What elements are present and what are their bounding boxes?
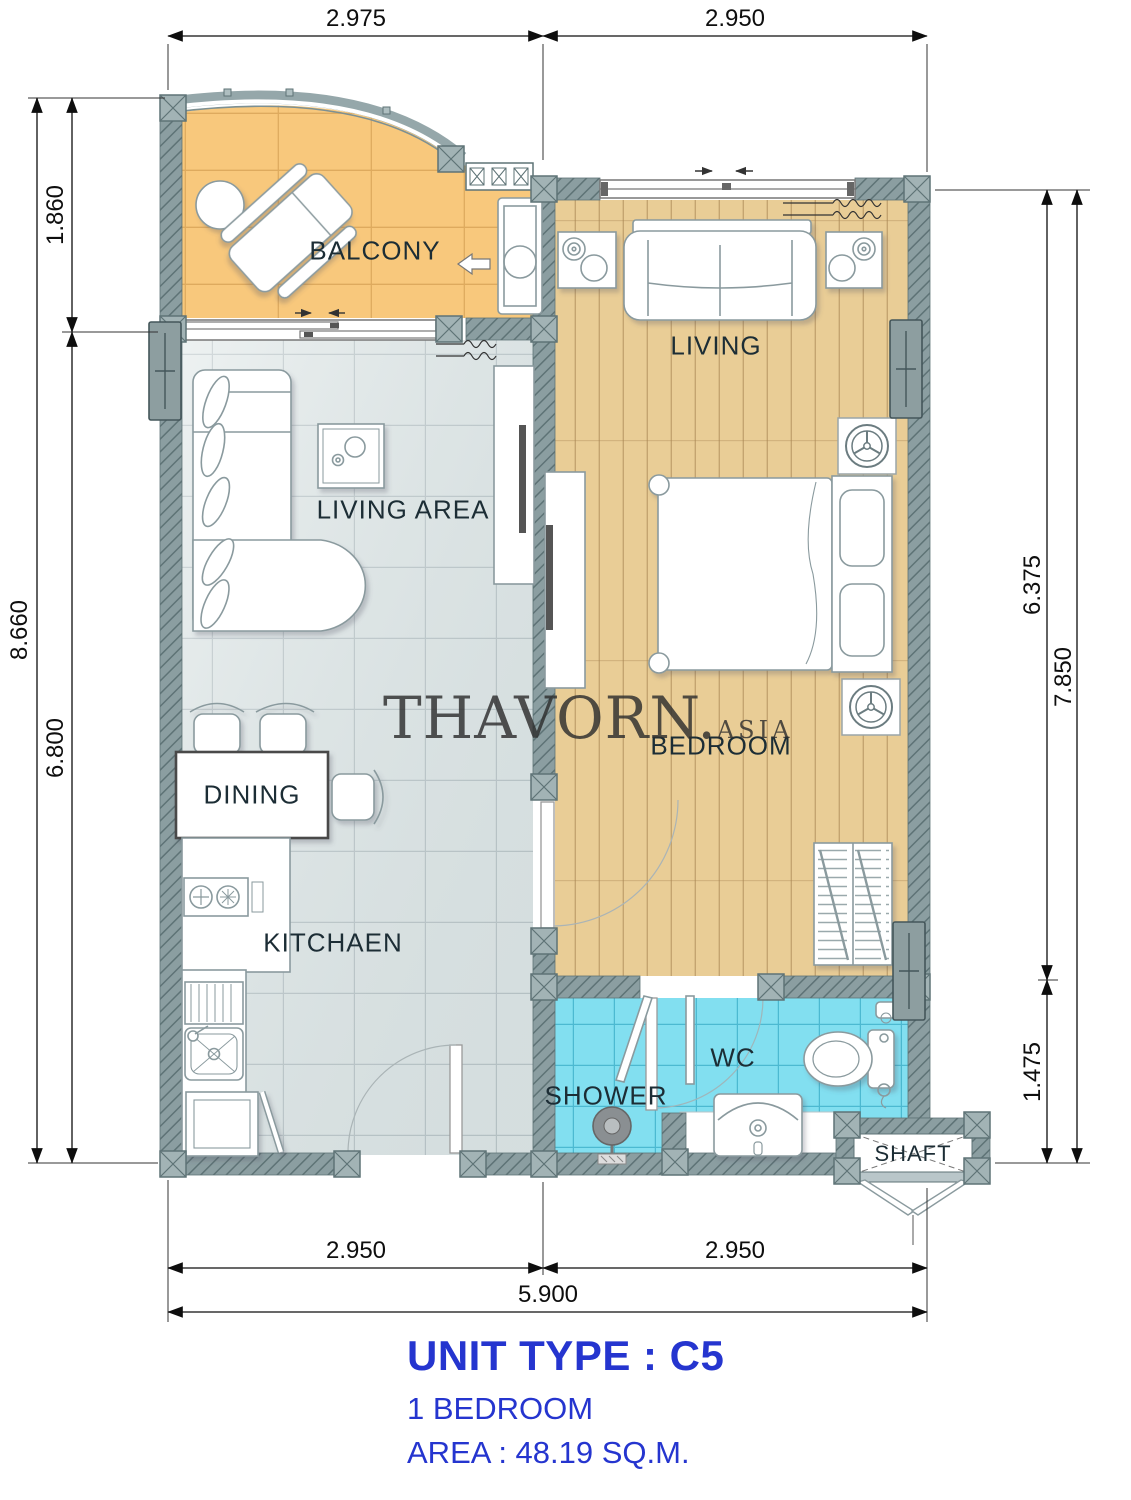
- room-label-dining: DINING: [204, 780, 301, 811]
- side-table-right: [826, 232, 882, 288]
- ceiling-fan-bedroom: [842, 679, 900, 735]
- bedroom-door-leaf: [541, 802, 554, 928]
- watermark: THAVORN.ASIA: [383, 684, 793, 752]
- tv-console-living-area: [494, 366, 534, 584]
- dim-right-total: 7.850: [1050, 647, 1078, 707]
- dim-bottom-right: 2.950: [705, 1237, 765, 1265]
- room-label-living-area: LIVING AREA: [317, 495, 490, 526]
- shaft-box: [834, 1112, 990, 1245]
- room-label-balcony: BALCONY: [309, 236, 440, 267]
- shower-head: [593, 1107, 631, 1164]
- bed: [649, 475, 892, 673]
- wardrobe: [814, 843, 892, 965]
- tv-cabinet-bedroom: [545, 472, 585, 688]
- living-window: [600, 171, 855, 198]
- room-label-shower: SHOWER: [545, 1081, 668, 1112]
- side-table-left: [558, 232, 616, 288]
- room-label-kitchen: KITCHAEN: [263, 928, 402, 959]
- watermark-brand: THAVORN.: [383, 684, 717, 752]
- entry-door-leaf: [450, 1045, 462, 1153]
- dim-left-total: 8.660: [6, 600, 34, 660]
- watermark-tld: ASIA: [717, 716, 794, 744]
- room-label-wc: WC: [710, 1043, 755, 1074]
- dim-bottom-total: 5.900: [518, 1281, 578, 1309]
- vanity-sink: [714, 1094, 802, 1156]
- ac-unit-bedroom: [893, 922, 925, 1020]
- dim-bottom-left: 2.950: [326, 1237, 386, 1265]
- louver-vent-panel: [466, 163, 533, 190]
- dim-top-left: 2.975: [326, 5, 386, 33]
- kitchen-sink: [185, 982, 243, 1080]
- sofa-living: [624, 220, 816, 320]
- unit-type-title: UNIT TYPE : C5: [407, 1332, 724, 1380]
- ac-unit-left: [149, 322, 181, 420]
- floorplan-canvas: 2.975 2.950 2.950 2.950 5.900 8.660 1.86…: [0, 0, 1131, 1500]
- dim-right-upper: 6.375: [1019, 555, 1047, 615]
- unit-area: AREA : 48.19 SQ.M.: [407, 1435, 724, 1471]
- bedroom-count: 1 BEDROOM: [407, 1391, 724, 1427]
- dim-right-lower: 1.475: [1019, 1042, 1047, 1102]
- coffee-table: [318, 424, 384, 488]
- ac-unit-living: [890, 320, 922, 418]
- dim-top-right: 2.950: [705, 5, 765, 33]
- ceiling-fan-living: [838, 418, 896, 474]
- room-label-living: LIVING: [670, 331, 761, 362]
- title-block: UNIT TYPE : C5 1 BEDROOM AREA : 48.19 SQ…: [407, 1332, 724, 1471]
- room-label-shaft: SHAFT: [874, 1141, 951, 1167]
- dim-left-balcony: 1.860: [42, 185, 70, 245]
- dim-left-main: 6.800: [42, 718, 70, 778]
- toilet: [804, 1030, 894, 1088]
